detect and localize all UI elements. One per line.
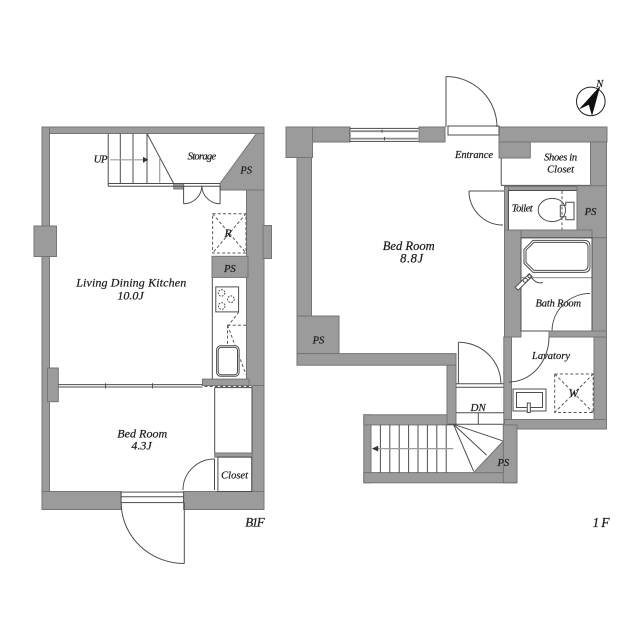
- svg-text:Storage: Storage: [188, 151, 217, 162]
- svg-text:1F: 1F: [593, 515, 611, 530]
- svg-text:PS: PS: [496, 458, 509, 469]
- svg-text:UP: UP: [94, 153, 108, 165]
- svg-text:W: W: [569, 388, 580, 400]
- svg-text:4.3J: 4.3J: [131, 439, 152, 453]
- svg-text:B1F: B1F: [245, 515, 266, 530]
- svg-text:Closet: Closet: [221, 471, 249, 482]
- svg-text:PS: PS: [239, 166, 252, 177]
- svg-text:Bath Room: Bath Room: [536, 299, 582, 310]
- svg-text:Entrance: Entrance: [454, 150, 493, 161]
- svg-text:PS: PS: [312, 335, 325, 346]
- svg-text:PS: PS: [223, 264, 236, 275]
- svg-text:8.8J: 8.8J: [400, 252, 424, 266]
- svg-text:Toilet: Toilet: [512, 203, 534, 214]
- svg-text:Lavatory: Lavatory: [531, 351, 570, 362]
- svg-text:R: R: [223, 228, 231, 240]
- svg-text:N: N: [595, 79, 604, 90]
- svg-text:10.0J: 10.0J: [117, 289, 144, 303]
- svg-text:Shoes in: Shoes in: [544, 153, 577, 164]
- svg-text:Living Dining Kitchen: Living Dining Kitchen: [75, 276, 186, 290]
- svg-text:PS: PS: [584, 207, 597, 218]
- svg-text:Closet: Closet: [547, 164, 575, 175]
